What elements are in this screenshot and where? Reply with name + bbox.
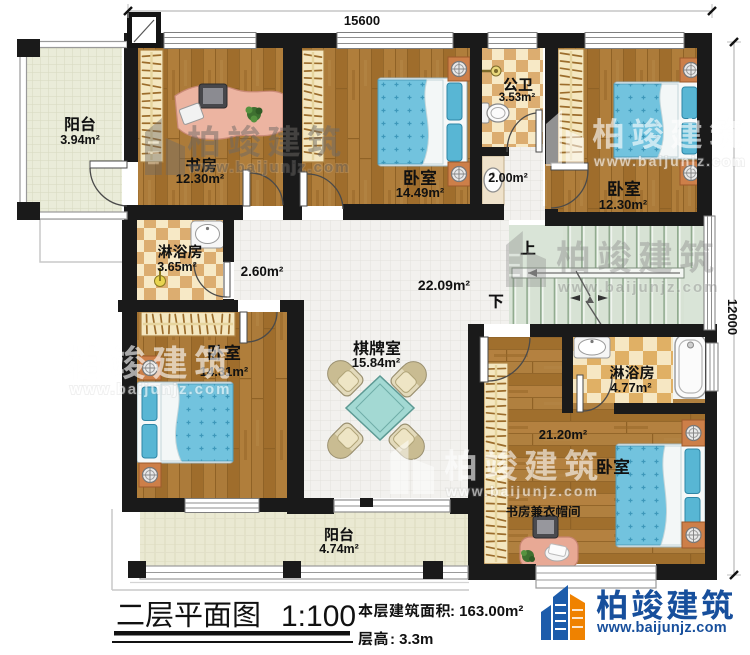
svg-text:3.53m²: 3.53m²: [499, 92, 536, 104]
svg-text:www.baijunjz.com: www.baijunjz.com: [593, 153, 747, 169]
svg-text:12000: 12000: [725, 299, 740, 335]
svg-text:1:100: 1:100: [281, 600, 356, 633]
svg-text:3.94m²: 3.94m²: [60, 133, 100, 147]
svg-text:14.49m²: 14.49m²: [396, 185, 445, 200]
svg-text:21.20m²: 21.20m²: [539, 427, 588, 442]
svg-text:4.74m²: 4.74m²: [319, 542, 359, 556]
svg-text:12.30m²: 12.30m²: [599, 197, 648, 212]
svg-text:www.baijunjz.com: www.baijunjz.com: [69, 381, 231, 398]
svg-text:4.77m²: 4.77m²: [610, 380, 652, 395]
svg-text:15.84m²: 15.84m²: [352, 355, 401, 370]
svg-text:3.65m²: 3.65m²: [157, 260, 197, 274]
svg-text:22.09m²: 22.09m²: [418, 277, 470, 293]
svg-text:www.baijunjz.com: www.baijunjz.com: [188, 159, 350, 176]
svg-text:www.baijunjz.com: www.baijunjz.com: [596, 620, 727, 636]
svg-text:www.baijunjz.com: www.baijunjz.com: [445, 483, 599, 499]
svg-text:: 163.00m²: : 163.00m²: [450, 603, 523, 620]
svg-text:2.00m²: 2.00m²: [488, 171, 528, 185]
svg-text:: 3.3m: : 3.3m: [390, 631, 433, 648]
svg-text:15600: 15600: [344, 13, 380, 28]
svg-text:www.baijunjz.com: www.baijunjz.com: [557, 279, 719, 296]
svg-text:2.60m²: 2.60m²: [241, 264, 284, 279]
